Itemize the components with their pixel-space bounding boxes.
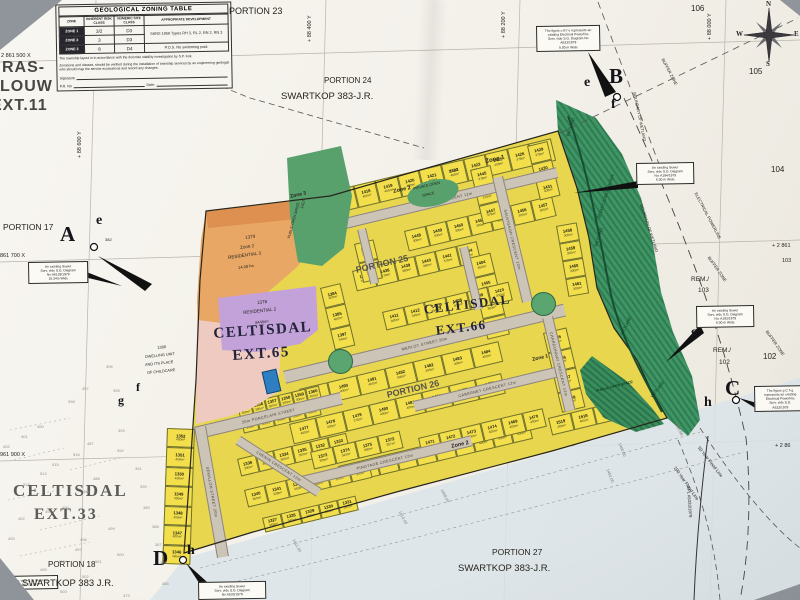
survey-number: 503 bbox=[60, 589, 67, 594]
survey-number: 385 bbox=[162, 581, 169, 586]
survey-number: 513 bbox=[23, 482, 30, 487]
survey-number: 398 bbox=[68, 399, 75, 404]
survey-number: 388 bbox=[152, 524, 159, 529]
survey-number: 400 bbox=[37, 424, 44, 429]
survey-number: 401 bbox=[21, 434, 28, 439]
contour-label: 1410.00 bbox=[398, 510, 409, 525]
survey-number: 501 bbox=[95, 559, 102, 564]
map-photo: 1417400m²1418400m²1419400m²1420400m²1421… bbox=[0, 0, 800, 600]
survey-number: 493 bbox=[8, 536, 15, 541]
survey-number: 496 bbox=[80, 537, 87, 542]
survey-number: 387 bbox=[155, 542, 162, 547]
survey-number: 392 bbox=[117, 448, 124, 453]
contour-label: 1400.00 bbox=[617, 442, 627, 457]
survey-number: 396 bbox=[106, 364, 113, 369]
survey-number: 498 bbox=[58, 559, 65, 564]
survey-number: 516 bbox=[73, 452, 80, 457]
survey-number: 389 bbox=[143, 505, 150, 510]
survey-number: 500 bbox=[117, 552, 124, 557]
survey-number: 395 bbox=[113, 388, 120, 393]
survey-number: 492 bbox=[18, 516, 25, 521]
survey-number: 495 bbox=[40, 567, 47, 572]
survey-number: 390 bbox=[140, 484, 147, 489]
survey-number: 393 bbox=[118, 428, 125, 433]
survey-number: 490 bbox=[62, 505, 69, 510]
survey-number: 497 bbox=[75, 547, 82, 552]
contour-label: 1398.00 bbox=[674, 421, 685, 436]
contour-label: 1408.00 bbox=[440, 488, 451, 503]
survey-number: 491 bbox=[45, 509, 52, 514]
survey-number: 502 bbox=[82, 574, 89, 579]
contour-label: 1411.00 bbox=[292, 538, 303, 553]
survey-number: 391 bbox=[135, 466, 142, 471]
survey-number: 515 bbox=[52, 462, 59, 467]
contour-label: 1402.00 bbox=[605, 468, 615, 483]
survey-number: 499 bbox=[108, 526, 115, 531]
survey-number: 489 bbox=[83, 489, 90, 494]
faint-numbers-layer: 1411.001410.001408.001402.001400.001398.… bbox=[0, 0, 800, 600]
survey-number: 386 bbox=[160, 560, 167, 565]
survey-number: 488 bbox=[93, 476, 100, 481]
survey-number: 514 bbox=[40, 471, 47, 476]
survey-number: 487 bbox=[87, 441, 94, 446]
survey-number: 373 bbox=[123, 593, 130, 598]
survey-number: 397 bbox=[82, 386, 89, 391]
survey-number: 402 bbox=[3, 444, 10, 449]
